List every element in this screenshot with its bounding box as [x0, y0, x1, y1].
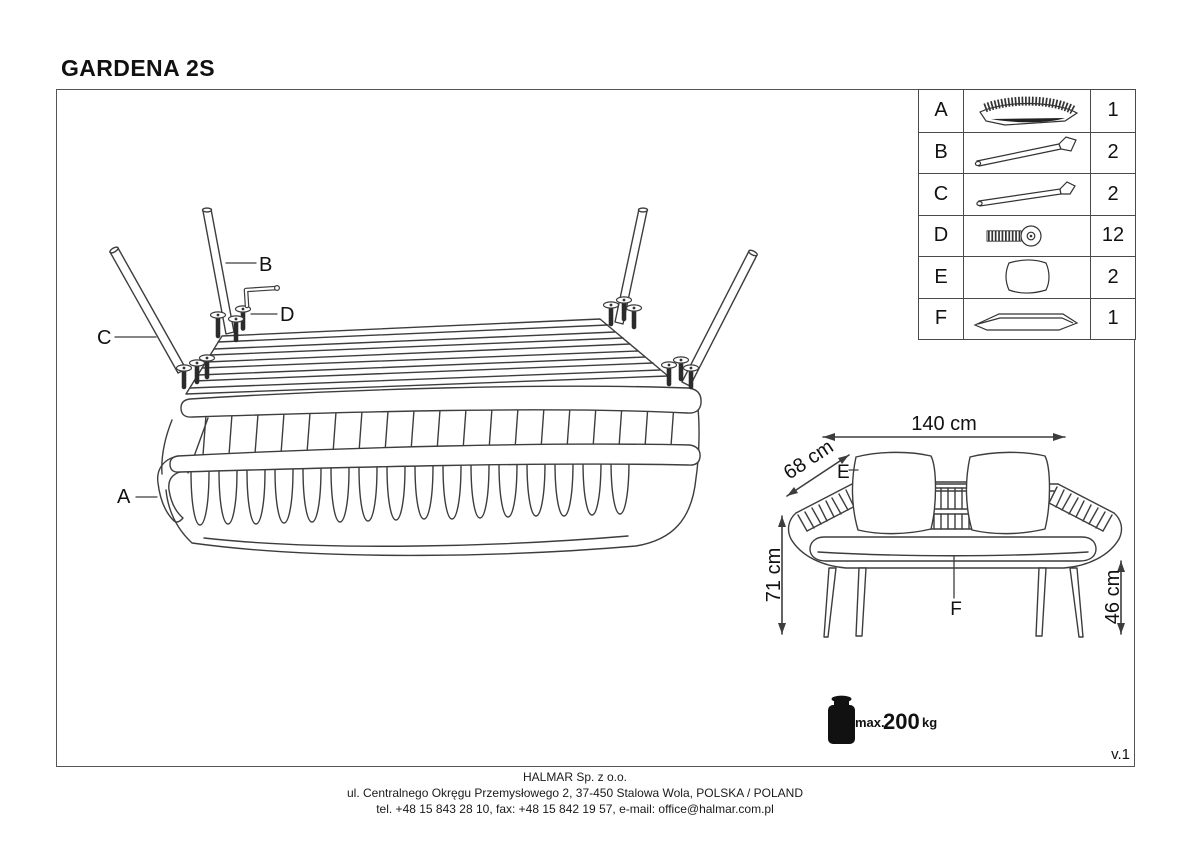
- dim-height: 71 cm: [763, 548, 785, 602]
- max-load-value: 200: [883, 709, 920, 734]
- allen-key-icon: [246, 286, 279, 306]
- footer-address: ul. Centralnego Okręgu Przemysłowego 2, …: [0, 786, 1150, 802]
- footer-contact: tel. +48 15 843 28 10, fax: +48 15 842 1…: [0, 802, 1150, 818]
- part-qty: 2: [1090, 132, 1135, 174]
- max-load-unit: kg: [922, 715, 937, 730]
- part-icon-leg-tube: [963, 173, 1090, 215]
- pillow-right: [966, 452, 1049, 533]
- part-icon-pillow: [963, 256, 1090, 298]
- dimension-view: 140 cm 68 cm 71 cm 46 cm E F: [763, 413, 1125, 637]
- part-id: E: [919, 256, 963, 298]
- label-f: F: [950, 599, 962, 620]
- part-qty: 1: [1090, 90, 1135, 132]
- part-qty: 12: [1090, 215, 1135, 257]
- part-id: C: [919, 173, 963, 215]
- part-icon-sofa-body: [963, 90, 1090, 132]
- sofa-body-part: [158, 386, 701, 555]
- leg-c: [110, 248, 186, 373]
- label-d: D: [280, 304, 294, 326]
- label-a: A: [117, 486, 131, 508]
- exploded-diagram: A B C D: [97, 208, 758, 555]
- pillow-left: [852, 452, 935, 533]
- version-label: v.1: [1088, 746, 1130, 763]
- part-qty: 2: [1090, 256, 1135, 298]
- part-qty: 1: [1090, 298, 1135, 340]
- seat-underside: [186, 319, 668, 394]
- part-id: A: [919, 90, 963, 132]
- dim-depth: 68 cm: [780, 436, 838, 484]
- part-id: F: [919, 298, 963, 340]
- label-e: E: [837, 462, 850, 483]
- label-c: C: [97, 327, 111, 349]
- part-icon-bolt: [963, 215, 1090, 257]
- dim-width: 140 cm: [911, 413, 977, 435]
- part-id: B: [919, 132, 963, 174]
- part-icon-seat-cushion: [963, 298, 1090, 340]
- bottom-inner-edge: [204, 536, 628, 546]
- max-load-prefix: max.: [855, 715, 885, 730]
- part-id: D: [919, 215, 963, 257]
- instruction-sheet: GARDENA 2S: [0, 0, 1200, 848]
- max-load: max. 200 kg: [828, 696, 937, 744]
- part-qty: 2: [1090, 173, 1135, 215]
- footer-company: HALMAR Sp. z o.o.: [0, 770, 1150, 786]
- label-b: B: [259, 254, 272, 276]
- footer: HALMAR Sp. z o.o. ul. Centralnego Okręgu…: [0, 770, 1150, 817]
- part-icon-leg-tube: [963, 132, 1090, 174]
- parts-table: A 1 B 2 C 2: [918, 89, 1136, 340]
- dim-seat-height: 46 cm: [1102, 570, 1124, 624]
- weight-icon: [828, 696, 855, 744]
